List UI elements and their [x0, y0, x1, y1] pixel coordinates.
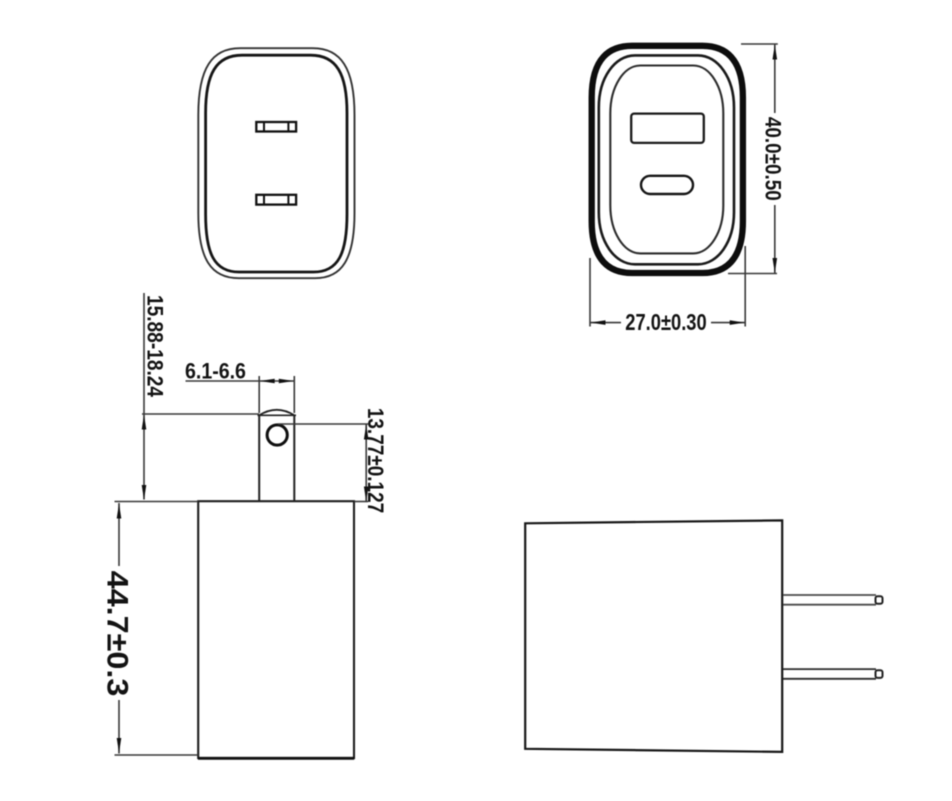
svg-text:6.1-6.6: 6.1-6.6	[185, 359, 246, 383]
svg-text:13.77±0.127: 13.77±0.127	[362, 408, 387, 513]
svg-text:27.0±0.30: 27.0±0.30	[625, 310, 706, 336]
svg-text:40.0±0.50: 40.0±0.50	[760, 117, 785, 201]
svg-text:44.7±0.3: 44.7±0.3	[101, 571, 135, 697]
svg-text:15.88-18.24: 15.88-18.24	[142, 295, 167, 398]
